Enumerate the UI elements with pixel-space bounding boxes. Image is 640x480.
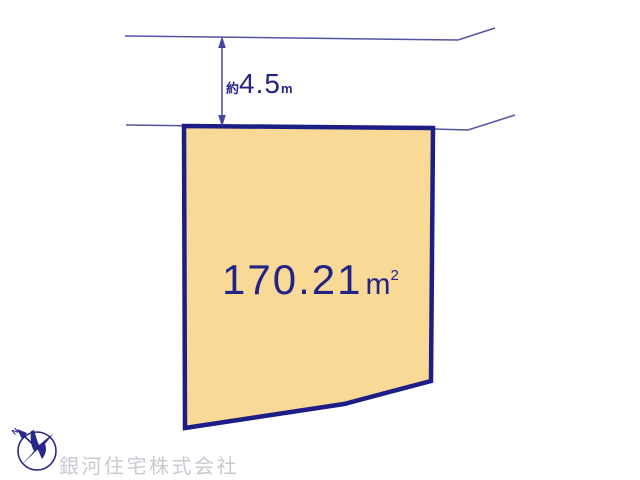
dimension-value: 4.5 xyxy=(239,68,281,100)
frontage-dimension-label: 約 4.5 m xyxy=(226,68,293,100)
compass-icon: N xyxy=(10,426,56,470)
area-unit-exponent: 2 xyxy=(390,267,398,284)
area-unit: m2 xyxy=(365,268,398,302)
dimension-approx-prefix: 約 xyxy=(226,78,239,97)
site-plan-page: N 約 4.5 m 170.21 m2 銀河住宅株式会社 xyxy=(0,0,640,480)
frontage-dimension-arrow xyxy=(218,36,226,127)
compass-circle xyxy=(18,432,56,470)
area-unit-base: m xyxy=(365,268,390,301)
site-plan-canvas: N xyxy=(0,0,640,480)
dimension-unit: m xyxy=(281,81,293,96)
area-value: 170.21 xyxy=(222,256,362,304)
parcel-area-label: 170.21 m2 xyxy=(222,256,399,304)
road-edge-upper-line xyxy=(125,28,495,40)
company-watermark: 銀河住宅株式会社 xyxy=(59,450,239,479)
